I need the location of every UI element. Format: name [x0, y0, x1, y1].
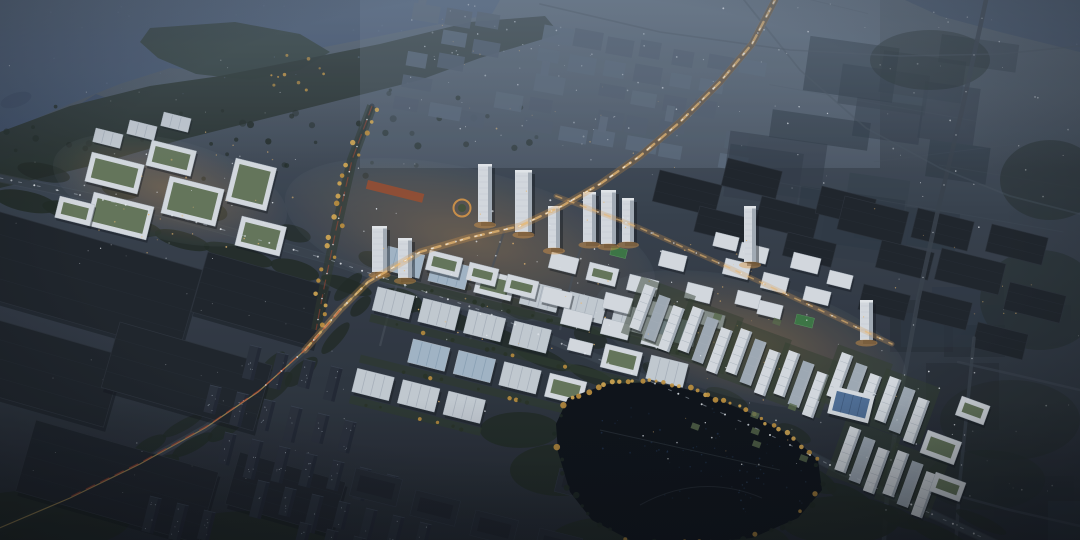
aerial-render-stage: [0, 0, 1080, 540]
vignette: [0, 0, 1080, 540]
aerial-city-render: [0, 0, 1080, 540]
